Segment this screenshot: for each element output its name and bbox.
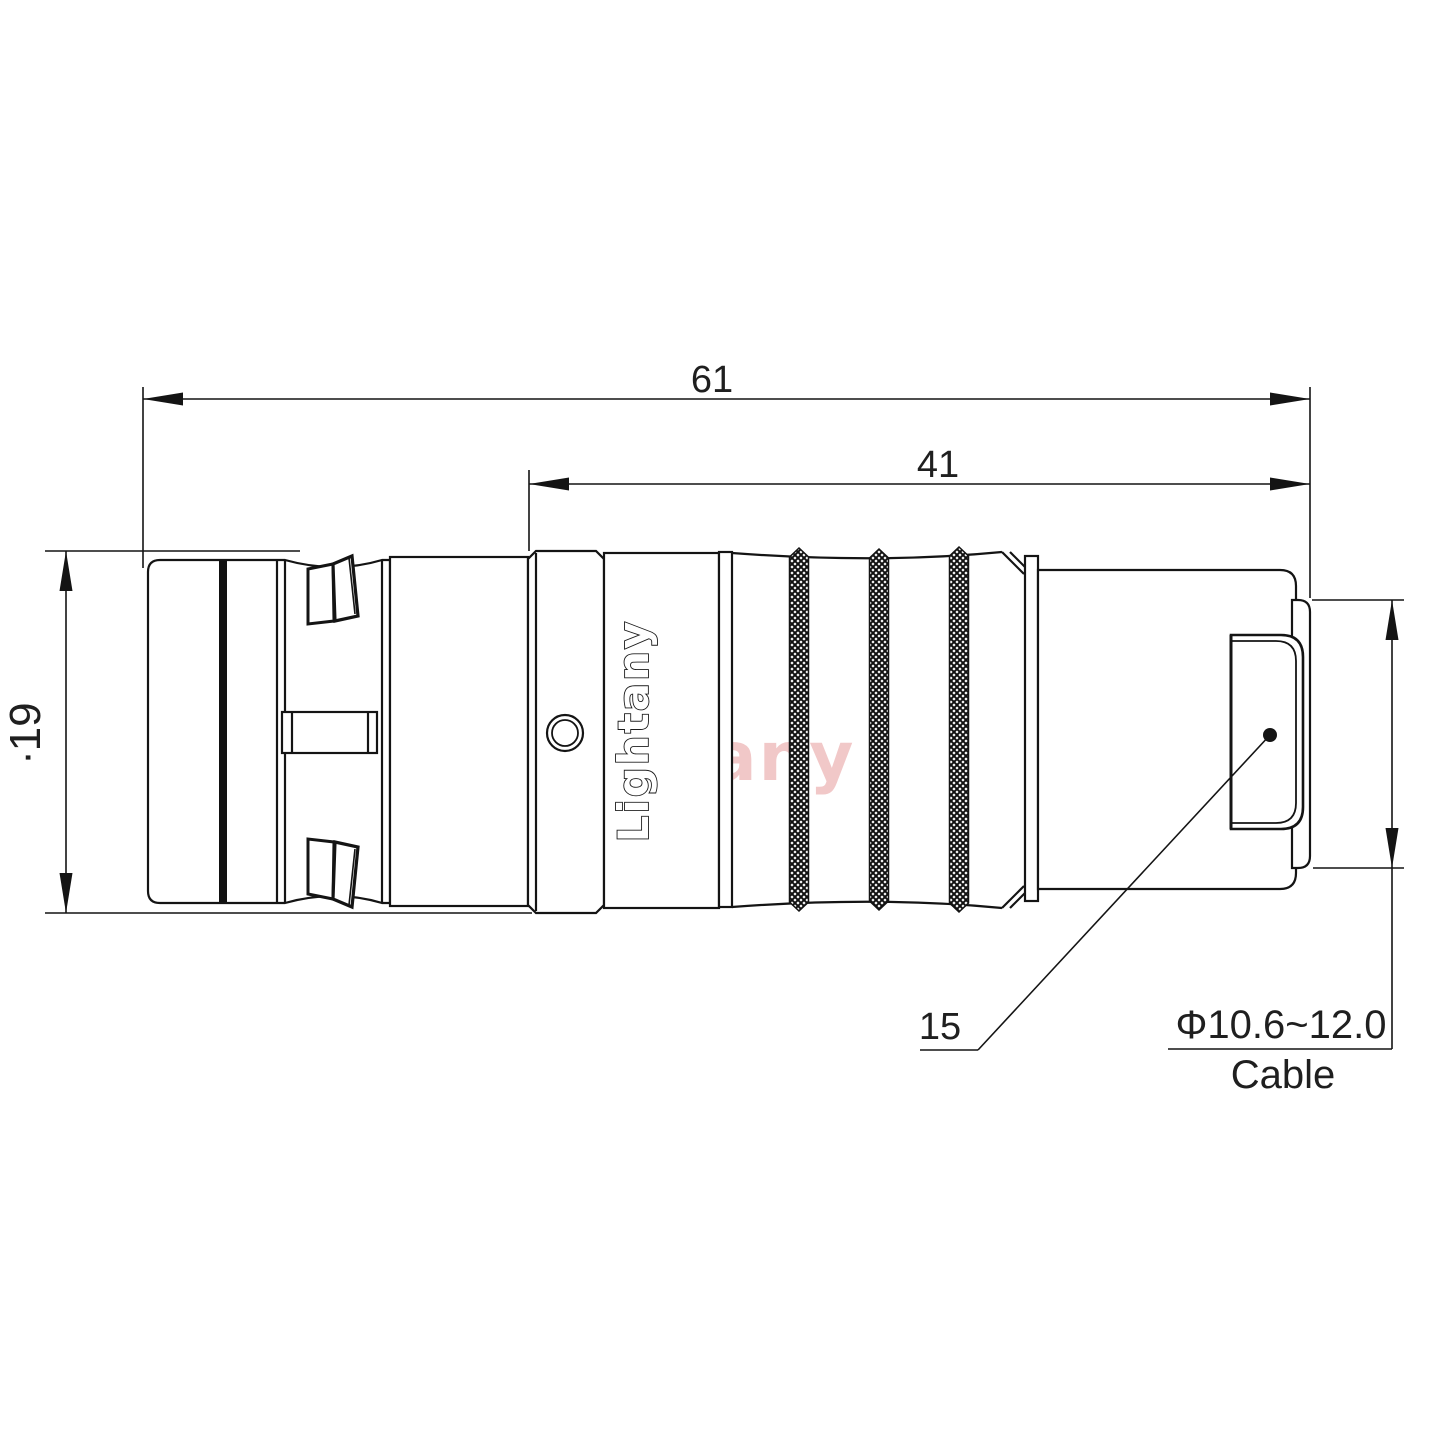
dimension-41-value: 41 <box>917 444 959 486</box>
latch-slider <box>282 712 377 753</box>
latch-top <box>308 556 358 624</box>
front-shell-rear-section <box>390 557 528 906</box>
latch-bottom <box>308 839 358 907</box>
barrel-groove-right <box>1025 556 1038 901</box>
cable-diameter-value: Φ10.6~12.0 <box>1176 1003 1387 1047</box>
brand-engraving: Lightany <box>609 620 658 843</box>
connector-body: Lightany <box>148 547 1310 913</box>
collar-hole-inner <box>552 720 578 746</box>
drawing-canvas: Lightany <box>0 0 1440 1440</box>
barrel-groove-left <box>719 552 732 907</box>
index-stripe <box>219 561 227 902</box>
leader-dot <box>1263 728 1277 742</box>
dimension-41: 41 <box>529 444 1310 551</box>
dimension-61-value: 61 <box>691 359 733 401</box>
cable-label: Cable <box>1231 1053 1336 1097</box>
dimension-dia19-value: ∙19 <box>1 702 50 763</box>
knurl-band <box>870 549 889 910</box>
knurl-band <box>790 548 809 911</box>
connector-technical-drawing: Lightany <box>0 0 1440 1440</box>
item-15-value: 15 <box>919 1006 961 1048</box>
knurl-band <box>950 547 969 912</box>
